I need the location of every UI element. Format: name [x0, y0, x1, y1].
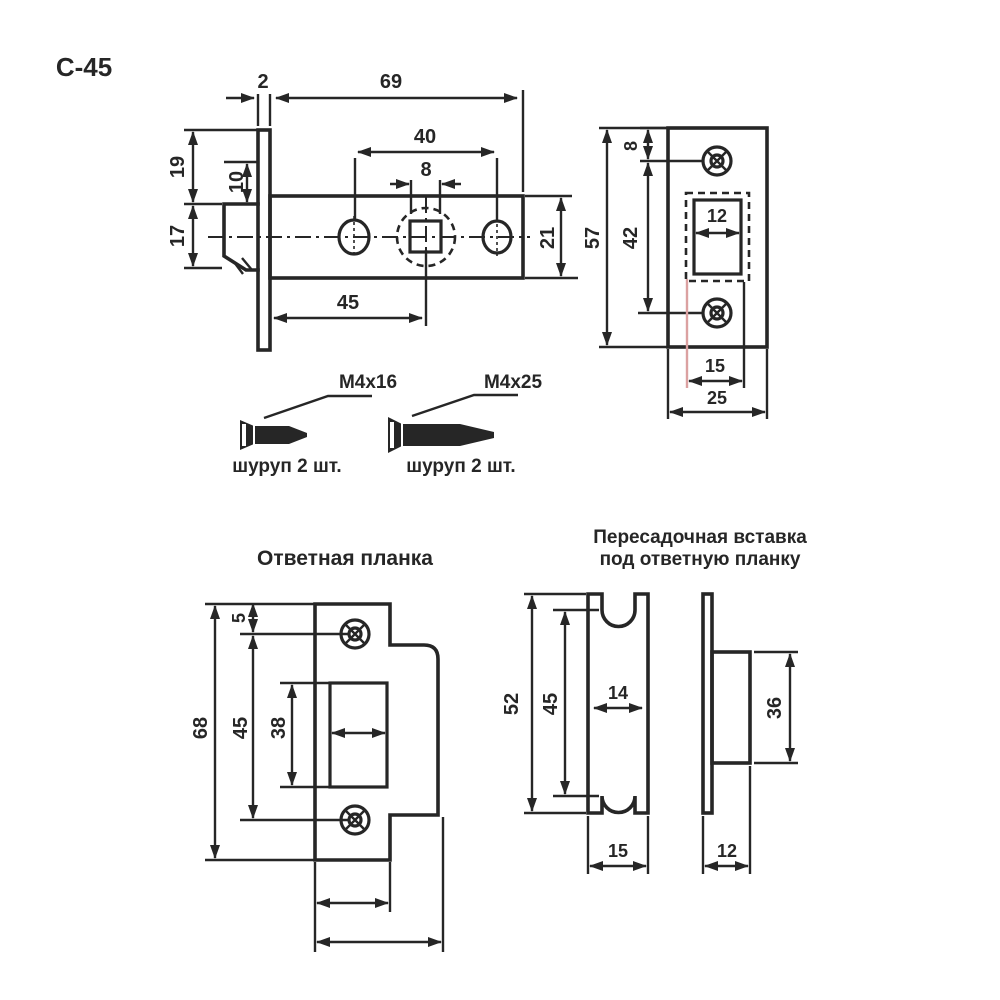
dim-label-cutout-height: 38 [268, 717, 290, 739]
dim-label-length: 69 [380, 71, 402, 93]
dim-label-top-offset: 5 [229, 613, 249, 623]
extension-lines [315, 817, 443, 952]
screw-hole-icon [703, 299, 731, 327]
dim-label-insert-width: 15 [608, 841, 628, 861]
dim-label-screw-spacing: 42 [620, 227, 642, 249]
dim-label-notch-width: 14 [608, 683, 628, 703]
dim-label-top-offset: 8 [621, 141, 641, 151]
insert-heading-line1: Пересадочная вставка [593, 527, 807, 548]
screw1-qty: шуруп 2 шт. [232, 456, 341, 477]
dim-label-backset: 45 [337, 292, 359, 314]
leader-line [264, 396, 372, 418]
leader-line [412, 395, 518, 416]
screw1-label: М4х16 [339, 372, 397, 393]
dim-label-square: 8 [420, 159, 431, 181]
dim-label-boss-height: 36 [764, 697, 786, 719]
screw-m4x25-icon [388, 417, 494, 453]
dim-label-cutout-width: 12 [707, 206, 727, 226]
extension-lines [184, 130, 260, 268]
insert-heading-line2: под ответную планку [600, 549, 801, 570]
dim-label-body-height: 21 [537, 227, 559, 249]
dim-label-bolt-height: 17 [167, 225, 189, 247]
dim-label-slot-width: 15 [705, 356, 725, 376]
dim-label-insert-height: 52 [501, 693, 523, 715]
strike-plate-view: Ответная планка 5 68 45 38 [190, 547, 443, 952]
extension-lines [258, 90, 523, 192]
strike-heading: Ответная планка [257, 547, 433, 570]
dim-label-side-width: 12 [717, 841, 737, 861]
dim-label-thickness: 2 [257, 71, 268, 93]
insert-front-outline [588, 594, 648, 813]
drawing-page: С-45 2 69 40 8 [0, 0, 1000, 1000]
screw2-qty: шуруп 2 шт. [406, 456, 515, 477]
page-title: С-45 [56, 52, 112, 82]
screw-slot [242, 424, 246, 446]
technical-drawing: С-45 2 69 40 8 [0, 0, 1000, 1000]
insert-side-boss [712, 652, 750, 763]
screw-hole-icon [703, 147, 731, 175]
screw-m4x16-icon [240, 420, 307, 450]
dim-label-hole-spacing: 40 [414, 126, 436, 148]
dim-label-height: 57 [582, 227, 604, 249]
latch-side-view: 2 69 40 8 19 17 10 21 45 [167, 71, 578, 350]
dim-label-screw-spacing: 45 [230, 717, 252, 739]
dim-label-width: 25 [707, 388, 727, 408]
dim-label-top-offset: 19 [167, 156, 189, 178]
dim-label-notch-spacing: 45 [540, 693, 562, 715]
screw2-label: М4х25 [484, 372, 543, 393]
faceplate-view: 12 8 42 57 15 25 [582, 128, 767, 419]
strike-cutout [330, 683, 387, 787]
insert-views: Пересадочная вставка под ответную планку… [501, 527, 807, 874]
screws-legend: М4х16 шуруп 2 шт. М4х25 шуруп 2 шт. [232, 372, 542, 477]
dim-label-height: 68 [190, 717, 212, 739]
screw-slot [390, 422, 394, 448]
dim-label-bolt-offset: 10 [226, 171, 248, 193]
